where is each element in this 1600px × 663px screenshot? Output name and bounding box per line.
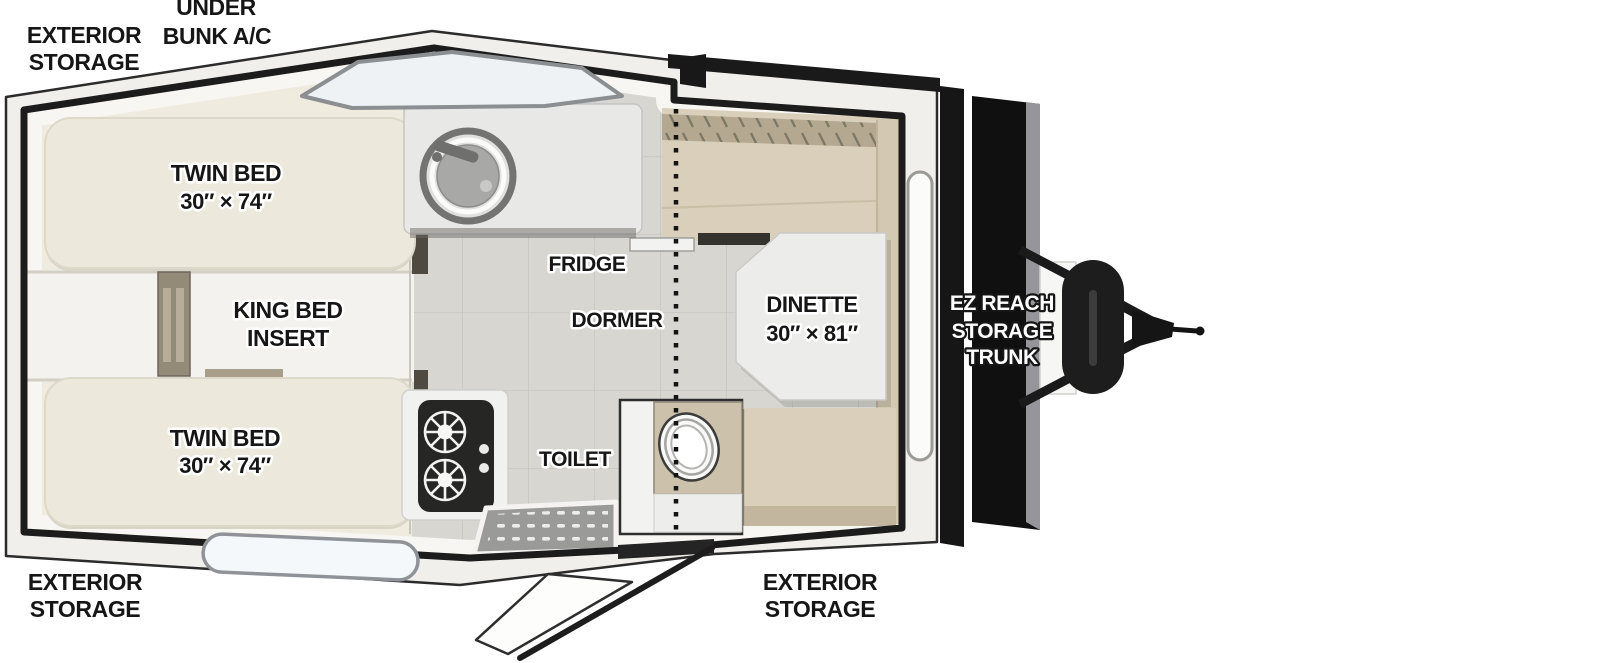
label-exterior-storage-bc-2: STORAGE [765,596,876,622]
label-exterior-storage-bl-1: EXTERIOR [28,569,143,595]
label-king-bed-2: INSERT [247,325,329,351]
jack-handle-knob [1196,327,1205,336]
king-bed-slide-area [20,270,414,382]
sink-icon [423,131,513,221]
under-bench-shadow-fixture [698,233,770,245]
stove-icon [402,390,508,520]
king-slide-cabinet [158,272,190,376]
label-twin-bed-top-1: TWIN BED [171,160,282,186]
floorplan-canvas: EXTERIOR STORAGE UNDER BUNK A/C TWIN BED… [0,0,1600,663]
label-under-bunk-ac-1: UNDER [176,0,257,20]
camper-floorplan-drawing: EXTERIOR STORAGE UNDER BUNK A/C TWIN BED… [0,0,1600,663]
label-ez-reach-1: EZ REACH [950,292,1054,315]
dinette-table [736,233,891,407]
rear-skirt-window [202,533,418,580]
label-under-bunk-ac-2: BUNK A/C [163,23,271,49]
door-panel [476,574,632,654]
label-dinette-1: DINETTE [766,292,857,317]
entry-step-mat [474,502,616,554]
toilet-icon [620,400,742,534]
label-ez-reach-2: STORAGE [952,320,1053,343]
label-exterior-storage-top-1: EXTERIOR [27,22,142,48]
label-exterior-storage-bc-1: EXTERIOR [763,569,878,595]
label-twin-bed-bottom-1: TWIN BED [170,425,281,451]
label-toilet: TOILET [539,448,611,471]
label-ez-reach-3: TRUNK [966,346,1038,369]
roof-fold-hinge [680,54,706,88]
king-slide-bar [205,369,283,377]
sink-counter [404,104,642,238]
fridge-vent-fixture [630,238,694,251]
label-king-bed-1: KING BED [233,297,342,323]
jack-handle [1170,329,1197,331]
label-twin-bed-bottom-2: 30″ × 74″ [179,453,271,478]
label-fridge: FRIDGE [549,253,626,276]
label-exterior-storage-bl-2: STORAGE [30,596,141,622]
label-twin-bed-top-2: 30″ × 74″ [180,189,272,214]
dinette-bench-rear [742,408,896,526]
coupler-jack-icon [1132,310,1174,348]
storage-trunk [940,86,1040,547]
label-dinette-2: 30″ × 81″ [766,321,858,346]
label-dormer: DORMER [572,309,663,332]
front-wall-window [908,172,932,460]
label-exterior-storage-top-2: STORAGE [29,49,140,75]
